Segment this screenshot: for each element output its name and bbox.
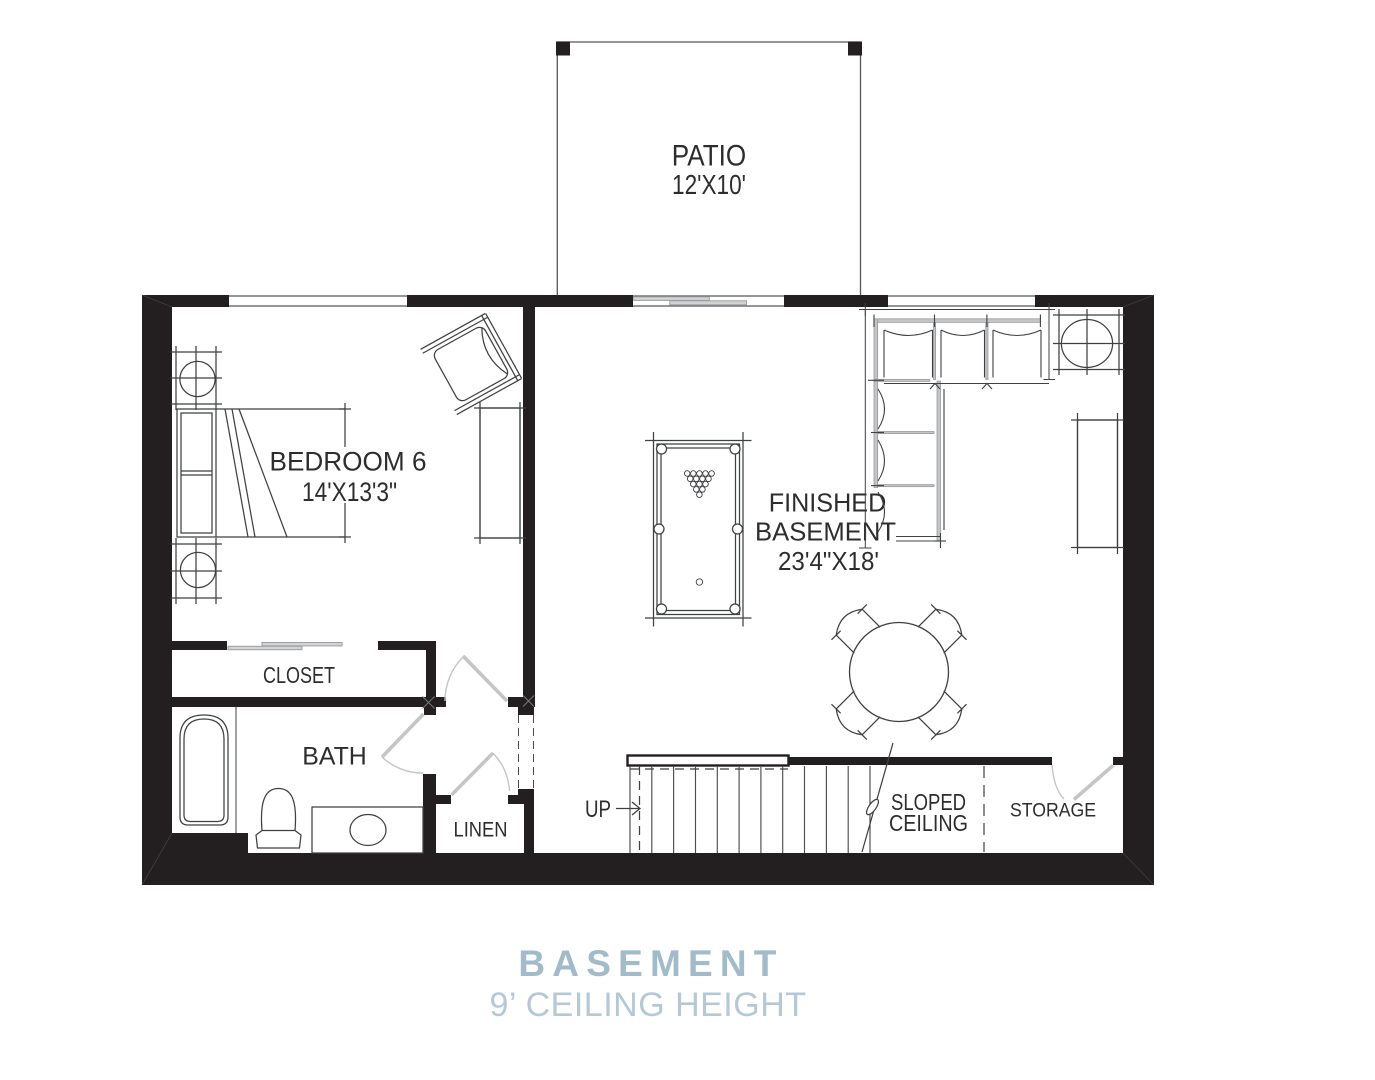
svg-text:PATIO: PATIO: [672, 140, 747, 173]
svg-text:23'4"X18': 23'4"X18': [778, 546, 879, 576]
svg-text:12'X10': 12'X10': [672, 169, 746, 200]
svg-text:CLOSET: CLOSET: [263, 662, 335, 688]
svg-text:BASEMENT: BASEMENT: [755, 517, 896, 547]
svg-text:LINEN: LINEN: [454, 819, 508, 842]
svg-text:BATH: BATH: [302, 743, 367, 771]
svg-text:14'X13'3": 14'X13'3": [302, 477, 397, 507]
svg-text:BEDROOM 6: BEDROOM 6: [270, 447, 427, 477]
svg-text:FINISHED: FINISHED: [769, 488, 887, 518]
svg-text:BASEMENT: BASEMENT: [518, 943, 783, 984]
svg-text:CEILING: CEILING: [889, 810, 968, 836]
svg-text:STORAGE: STORAGE: [1010, 800, 1096, 822]
svg-text:UP: UP: [585, 796, 611, 823]
svg-text:9’ CEILING HEIGHT: 9’ CEILING HEIGHT: [489, 986, 806, 1024]
